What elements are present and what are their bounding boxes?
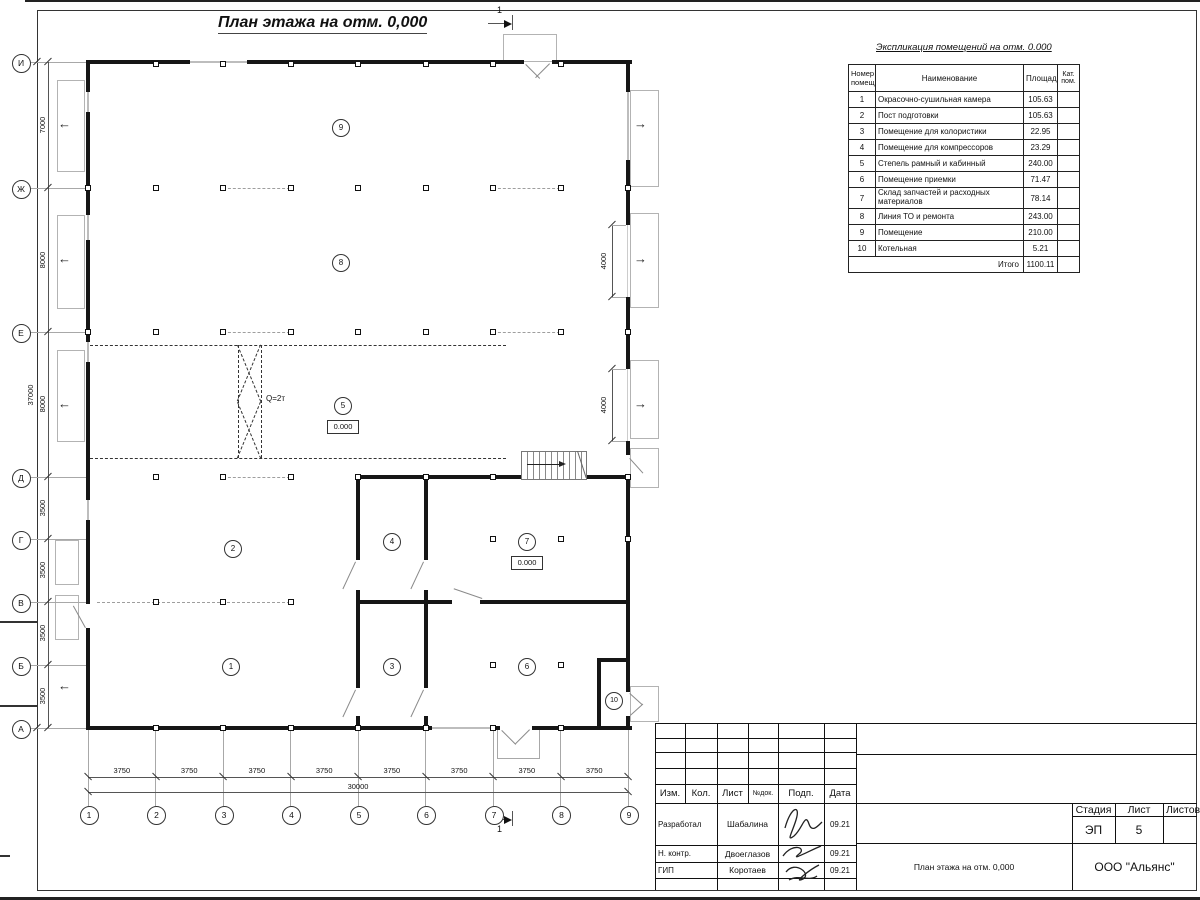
dim-label: 3750: [372, 766, 412, 776]
tb-role: Н. контр.: [655, 845, 720, 862]
column-marker: [558, 61, 564, 67]
cell-area: 23.29: [1024, 140, 1058, 156]
axis-line: [29, 539, 86, 540]
axis-line: [493, 730, 494, 806]
gate-opening: [627, 225, 628, 297]
grid-axis-col: 4: [282, 806, 301, 825]
section-mark-label-top: 1: [497, 5, 502, 15]
dim-label: 8000: [38, 240, 48, 280]
cell-area: 240.00: [1024, 156, 1058, 172]
door-swing: [501, 730, 516, 745]
room-number: 7: [518, 533, 536, 551]
wall-segment: [86, 240, 90, 342]
cell-cat: [1058, 156, 1080, 172]
table-total-row: Итого1100.11: [849, 257, 1080, 273]
cell-area: 210.00: [1024, 225, 1058, 241]
cell-area: 5.21: [1024, 241, 1058, 257]
table-row: 4Помещение для компрессоров23.29: [849, 140, 1080, 156]
column-marker: [220, 329, 226, 335]
grid-axis-col: 3: [215, 806, 234, 825]
entry-porch: [630, 90, 659, 187]
column-marker: [153, 725, 159, 731]
entry-porch: [630, 448, 659, 488]
column-marker: [625, 474, 631, 480]
tb-col-izm: Изм.: [655, 784, 685, 803]
column-marker: [220, 725, 226, 731]
room-number: 5: [334, 397, 352, 415]
wall-interior: [424, 479, 428, 560]
axis-line: [29, 602, 86, 603]
dim-ext: [612, 297, 626, 298]
fold-mark: [0, 621, 37, 623]
cell-name: Склад запчастей и расходных материалов: [876, 188, 1024, 209]
elevation-mark: 0.000: [327, 420, 359, 434]
axis-line: [628, 730, 629, 806]
axis-line: [29, 477, 86, 478]
column-marker: [220, 185, 226, 191]
column-marker: [153, 185, 159, 191]
vestibule-wall: [539, 730, 540, 758]
tb-stage-label: Стадия: [1072, 803, 1115, 816]
room-number: 10: [605, 692, 623, 710]
table-row: 1Окрасочно-сушильная камера105.63: [849, 92, 1080, 108]
dim-line: [48, 62, 49, 728]
grid-dashed: [223, 332, 290, 333]
column-marker: [490, 662, 496, 668]
dim-label: 3500: [38, 550, 48, 590]
dim-label-total: 37000: [26, 375, 36, 415]
cell-cat: [1058, 92, 1080, 108]
column-marker: [558, 725, 564, 731]
wall-segment: [626, 441, 630, 455]
dim-label: 3750: [169, 766, 209, 776]
tb-doc-name: План этажа на отм. 0,000: [856, 843, 1072, 890]
cell-cat: [1058, 209, 1080, 225]
column-marker: [355, 725, 361, 731]
column-marker: [153, 474, 159, 480]
tb-sheet-value: 5: [1115, 816, 1163, 843]
explication-title: Экспликация помещений на отм. 0.000: [876, 42, 1052, 53]
axis-line: [29, 188, 86, 189]
table-row: 10Котельная5.21: [849, 241, 1080, 257]
column-marker: [558, 329, 564, 335]
signature: [779, 800, 824, 844]
cell-name: Степель рамный и кабинный: [876, 156, 1024, 172]
column-marker: [220, 599, 226, 605]
column-marker: [85, 185, 91, 191]
wall-segment: [86, 60, 190, 64]
cell-cat: [1058, 225, 1080, 241]
column-marker: [558, 185, 564, 191]
grid-dashed: [223, 477, 290, 478]
column-marker: [423, 329, 429, 335]
cell-num: 7: [849, 188, 876, 209]
door-swing: [525, 64, 540, 79]
table-row: 6Помещение приемки71.47: [849, 172, 1080, 188]
section-mark-label-bottom: 1: [497, 824, 502, 834]
column-marker: [423, 474, 429, 480]
cell-cat: [1058, 257, 1080, 273]
entry-porch: [630, 686, 659, 722]
frame-right: [1196, 10, 1197, 890]
window: [432, 727, 490, 729]
column-marker: [625, 536, 631, 542]
grid-dashed: [493, 332, 560, 333]
cell-area: 105.63: [1024, 108, 1058, 124]
wall-interior: [424, 590, 428, 688]
door-swing: [342, 690, 356, 718]
dim-label: 3500: [38, 488, 48, 528]
wall-segment: [86, 628, 90, 730]
cell-cat: [1058, 140, 1080, 156]
wall-segment: [532, 726, 632, 730]
gate-opening: [627, 369, 628, 441]
grid-axis-row: Г: [12, 531, 31, 550]
cell-cat: [1058, 172, 1080, 188]
cell-area: 243.00: [1024, 209, 1058, 225]
dim-label: 3750: [439, 766, 479, 776]
entry-porch: [503, 34, 557, 62]
dim-label: 4000: [599, 241, 609, 281]
exit-arrow-icon: ←: [58, 398, 71, 410]
cell-num: 9: [849, 225, 876, 241]
exit-arrow-icon: ←: [58, 118, 71, 130]
stairs: [521, 451, 587, 480]
cell-num: 1: [849, 92, 876, 108]
cell-num: 5: [849, 156, 876, 172]
wall-segment: [86, 520, 90, 604]
door-swing: [535, 63, 550, 78]
cell-area: 71.47: [1024, 172, 1058, 188]
room-number: 2: [224, 540, 242, 558]
axis-line: [425, 730, 426, 806]
cell-area: 22.95: [1024, 124, 1058, 140]
cell-num: 4: [849, 140, 876, 156]
window: [87, 92, 89, 112]
cell-cat: [1058, 188, 1080, 209]
door-swing: [342, 562, 356, 590]
stairs-direction-arrow: [559, 461, 566, 467]
dim-label: 7000: [38, 105, 48, 145]
room-number: 4: [383, 533, 401, 551]
cell-num: 10: [849, 241, 876, 257]
column-marker: [490, 725, 496, 731]
dim-label: 3750: [102, 766, 142, 776]
dim-label: 3750: [507, 766, 547, 776]
exit-arrow-icon: →: [634, 253, 647, 265]
column-marker: [153, 599, 159, 605]
cell-name: Котельная: [876, 241, 1024, 257]
dim-ext: [612, 369, 626, 370]
grid-axis-row: Ж: [12, 180, 31, 199]
door-swing: [410, 562, 424, 590]
grid-axis-row: В: [12, 594, 31, 613]
exit-arrow-icon: →: [634, 118, 647, 130]
wall-segment: [626, 716, 630, 730]
cell-num: 3: [849, 124, 876, 140]
cell-name: Помещение приемки: [876, 172, 1024, 188]
door-swing: [515, 729, 530, 744]
section-tick-top: [512, 15, 513, 30]
room-number: 8: [332, 254, 350, 272]
wall-interior: [356, 600, 452, 604]
window: [190, 61, 247, 63]
exit-arrow-icon: ←: [58, 253, 71, 265]
wall-segment: [86, 60, 90, 92]
column-marker: [423, 61, 429, 67]
column-marker: [288, 61, 294, 67]
cell-cat: [1058, 108, 1080, 124]
cell-area: 105.63: [1024, 92, 1058, 108]
signature: [779, 840, 824, 885]
column-marker: [355, 185, 361, 191]
wall-segment: [552, 60, 632, 64]
dim-label: 3750: [237, 766, 277, 776]
wall-segment: [86, 362, 90, 500]
grid-axis-col: 2: [147, 806, 166, 825]
total-label: Итого: [849, 257, 1024, 273]
dim-label: 8000: [38, 384, 48, 424]
column-marker: [490, 329, 496, 335]
wall-segment: [86, 726, 432, 730]
tb-date: 09.21: [824, 845, 856, 862]
grid-axis-col: 1: [80, 806, 99, 825]
grid-axis-row: И: [12, 54, 31, 73]
tb-sheets-label: Листов: [1163, 803, 1200, 816]
elevation-mark: 0.000: [511, 556, 543, 570]
door-swing: [454, 588, 483, 599]
stairs-direction-line: [527, 464, 561, 465]
grid-axis-col: 6: [417, 806, 436, 825]
table-row: 5Степель рамный и кабинный240.00: [849, 156, 1080, 172]
tb-name: Двоеглазов: [717, 845, 778, 862]
window: [87, 342, 89, 362]
wall-segment: [86, 112, 90, 215]
fold-mark: [0, 855, 10, 857]
column-marker: [288, 725, 294, 731]
cell-area: 78.14: [1024, 188, 1058, 209]
zone-boundary-dashed: [90, 458, 506, 459]
grid-axis-col: 7: [485, 806, 504, 825]
tb-role: Разработал: [655, 803, 720, 845]
cell-name: Помещение для колористики: [876, 124, 1024, 140]
tb-date: 09.21: [824, 862, 856, 878]
tb-company: ООО "Альянс": [1072, 843, 1197, 890]
column-marker: [490, 61, 496, 67]
sheet-top-edge: [25, 0, 1200, 2]
dim-line: [88, 792, 628, 793]
column-marker: [85, 329, 91, 335]
column-marker: [153, 61, 159, 67]
crane-capacity-label: Q=2т: [266, 394, 285, 403]
cell-num: 6: [849, 172, 876, 188]
wall-boiler-room: [597, 658, 630, 662]
column-marker: [288, 599, 294, 605]
column-marker: [288, 329, 294, 335]
column-marker: [355, 329, 361, 335]
dim-label: 3500: [38, 613, 48, 653]
drawing-title: План этажа на отм. 0,000: [218, 14, 427, 34]
fold-mark: [0, 705, 37, 707]
frame-top: [37, 10, 1197, 11]
tb-col-list: Лист: [717, 784, 748, 803]
sheet-bottom-edge: [0, 897, 1200, 900]
room-number: 1: [222, 658, 240, 676]
column-marker: [558, 662, 564, 668]
grid-axis-row: Б: [12, 657, 31, 676]
titleblock-line: [655, 878, 856, 879]
column-marker: [423, 725, 429, 731]
explication-table: Номер помещ. Наименование Площадь Кат. п…: [848, 64, 1080, 273]
axis-line: [560, 730, 561, 806]
zone-boundary-dashed: [90, 345, 506, 346]
wall-interior: [480, 600, 630, 604]
wall-segment: [626, 60, 630, 92]
axis-line: [29, 332, 86, 333]
column-marker: [558, 536, 564, 542]
wall-boiler-room: [597, 662, 601, 726]
exit-arrow-icon: ←: [58, 680, 71, 692]
titleblock-line: [856, 754, 1197, 755]
column-marker: [423, 185, 429, 191]
frame-bottom: [37, 890, 1197, 891]
room-number: 9: [332, 119, 350, 137]
cell-name: Помещение: [876, 225, 1024, 241]
grid-axis-col: 8: [552, 806, 571, 825]
axis-line: [88, 730, 89, 806]
axis-line: [223, 730, 224, 806]
axis-line: [358, 730, 359, 806]
dim-label-total: 30000: [338, 782, 378, 792]
column-marker: [288, 474, 294, 480]
cell-num: 8: [849, 209, 876, 225]
column-marker: [355, 61, 361, 67]
section-arrow-top: [504, 20, 512, 28]
dim-label: 4000: [599, 385, 609, 425]
dim-label: 3750: [574, 766, 614, 776]
tb-name: Коротаев: [717, 862, 778, 878]
window: [87, 215, 89, 240]
column-marker: [220, 61, 226, 67]
section-tick-bottom: [512, 811, 513, 826]
grid-axis-col: 9: [620, 806, 639, 825]
exp-header-area: Площадь: [1024, 65, 1058, 92]
tb-role: ГИП: [655, 862, 720, 878]
exp-header-name: Наименование: [876, 65, 1024, 92]
dim-line: [612, 369, 613, 441]
cell-cat: [1058, 124, 1080, 140]
grid-dashed: [493, 188, 560, 189]
column-marker: [288, 185, 294, 191]
table-row: 3Помещение для колористики22.95: [849, 124, 1080, 140]
dim-ext: [612, 225, 626, 226]
vestibule-wall: [497, 730, 498, 758]
window: [627, 92, 629, 160]
dim-label: 3750: [304, 766, 344, 776]
tb-stage-value: ЭП: [1072, 816, 1115, 843]
cell-name: Помещение для компрессоров: [876, 140, 1024, 156]
column-marker: [625, 185, 631, 191]
cell-cat: [1058, 241, 1080, 257]
column-marker: [490, 536, 496, 542]
room-number: 6: [518, 658, 536, 676]
cell-name: Пост подготовки: [876, 108, 1024, 124]
column-marker: [355, 474, 361, 480]
table-row: 8Линия ТО и ремонта243.00: [849, 209, 1080, 225]
wall-interior: [356, 590, 360, 688]
wall-interior: [356, 479, 360, 560]
vestibule-wall: [497, 758, 540, 759]
grid-axis-row: Е: [12, 324, 31, 343]
wall-segment: [626, 160, 630, 225]
grid-axis-row: Д: [12, 469, 31, 488]
column-marker: [490, 474, 496, 480]
cell-name: Окрасочно-сушильная камера: [876, 92, 1024, 108]
exp-header-num: Номер помещ.: [849, 65, 876, 92]
axis-line: [155, 730, 156, 806]
dim-label: 3500: [38, 676, 48, 716]
room-number: 3: [383, 658, 401, 676]
titleblock-line: [655, 723, 1197, 724]
table-row: 9Помещение210.00: [849, 225, 1080, 241]
window: [87, 500, 89, 520]
tb-sheet-label: Лист: [1115, 803, 1163, 816]
total-value: 1100.11: [1024, 257, 1058, 273]
tb-col-ndok: №док.: [748, 784, 778, 803]
entry-porch: [55, 540, 79, 585]
tb-col-kol: Кол.: [685, 784, 717, 803]
drawing-sheet: План этажа на отм. 0,000 1 1: [0, 0, 1200, 900]
door-swing: [410, 690, 424, 718]
grid-axis-row: А: [12, 720, 31, 739]
exp-header-cat: Кат. пом.: [1058, 65, 1080, 92]
grid-dashed: [97, 602, 290, 603]
grid-axis-col: 5: [350, 806, 369, 825]
exit-arrow-icon: →: [634, 398, 647, 410]
column-marker: [220, 474, 226, 480]
table-row: 7Склад запчастей и расходных материалов7…: [849, 188, 1080, 209]
cell-name: Линия ТО и ремонта: [876, 209, 1024, 225]
axis-line: [290, 730, 291, 806]
dim-line: [612, 225, 613, 297]
column-marker: [490, 185, 496, 191]
column-marker: [625, 329, 631, 335]
dim-ext: [612, 441, 626, 442]
cell-num: 2: [849, 108, 876, 124]
axis-line: [29, 665, 86, 666]
grid-dashed: [223, 188, 290, 189]
section-arrow-bottom: [504, 816, 512, 824]
tb-name: Шабалина: [717, 803, 778, 845]
column-marker: [153, 329, 159, 335]
tb-col-data: Дата: [824, 784, 856, 803]
table-row: 2Пост подготовки105.63: [849, 108, 1080, 124]
tb-date: 09.21: [824, 803, 856, 845]
